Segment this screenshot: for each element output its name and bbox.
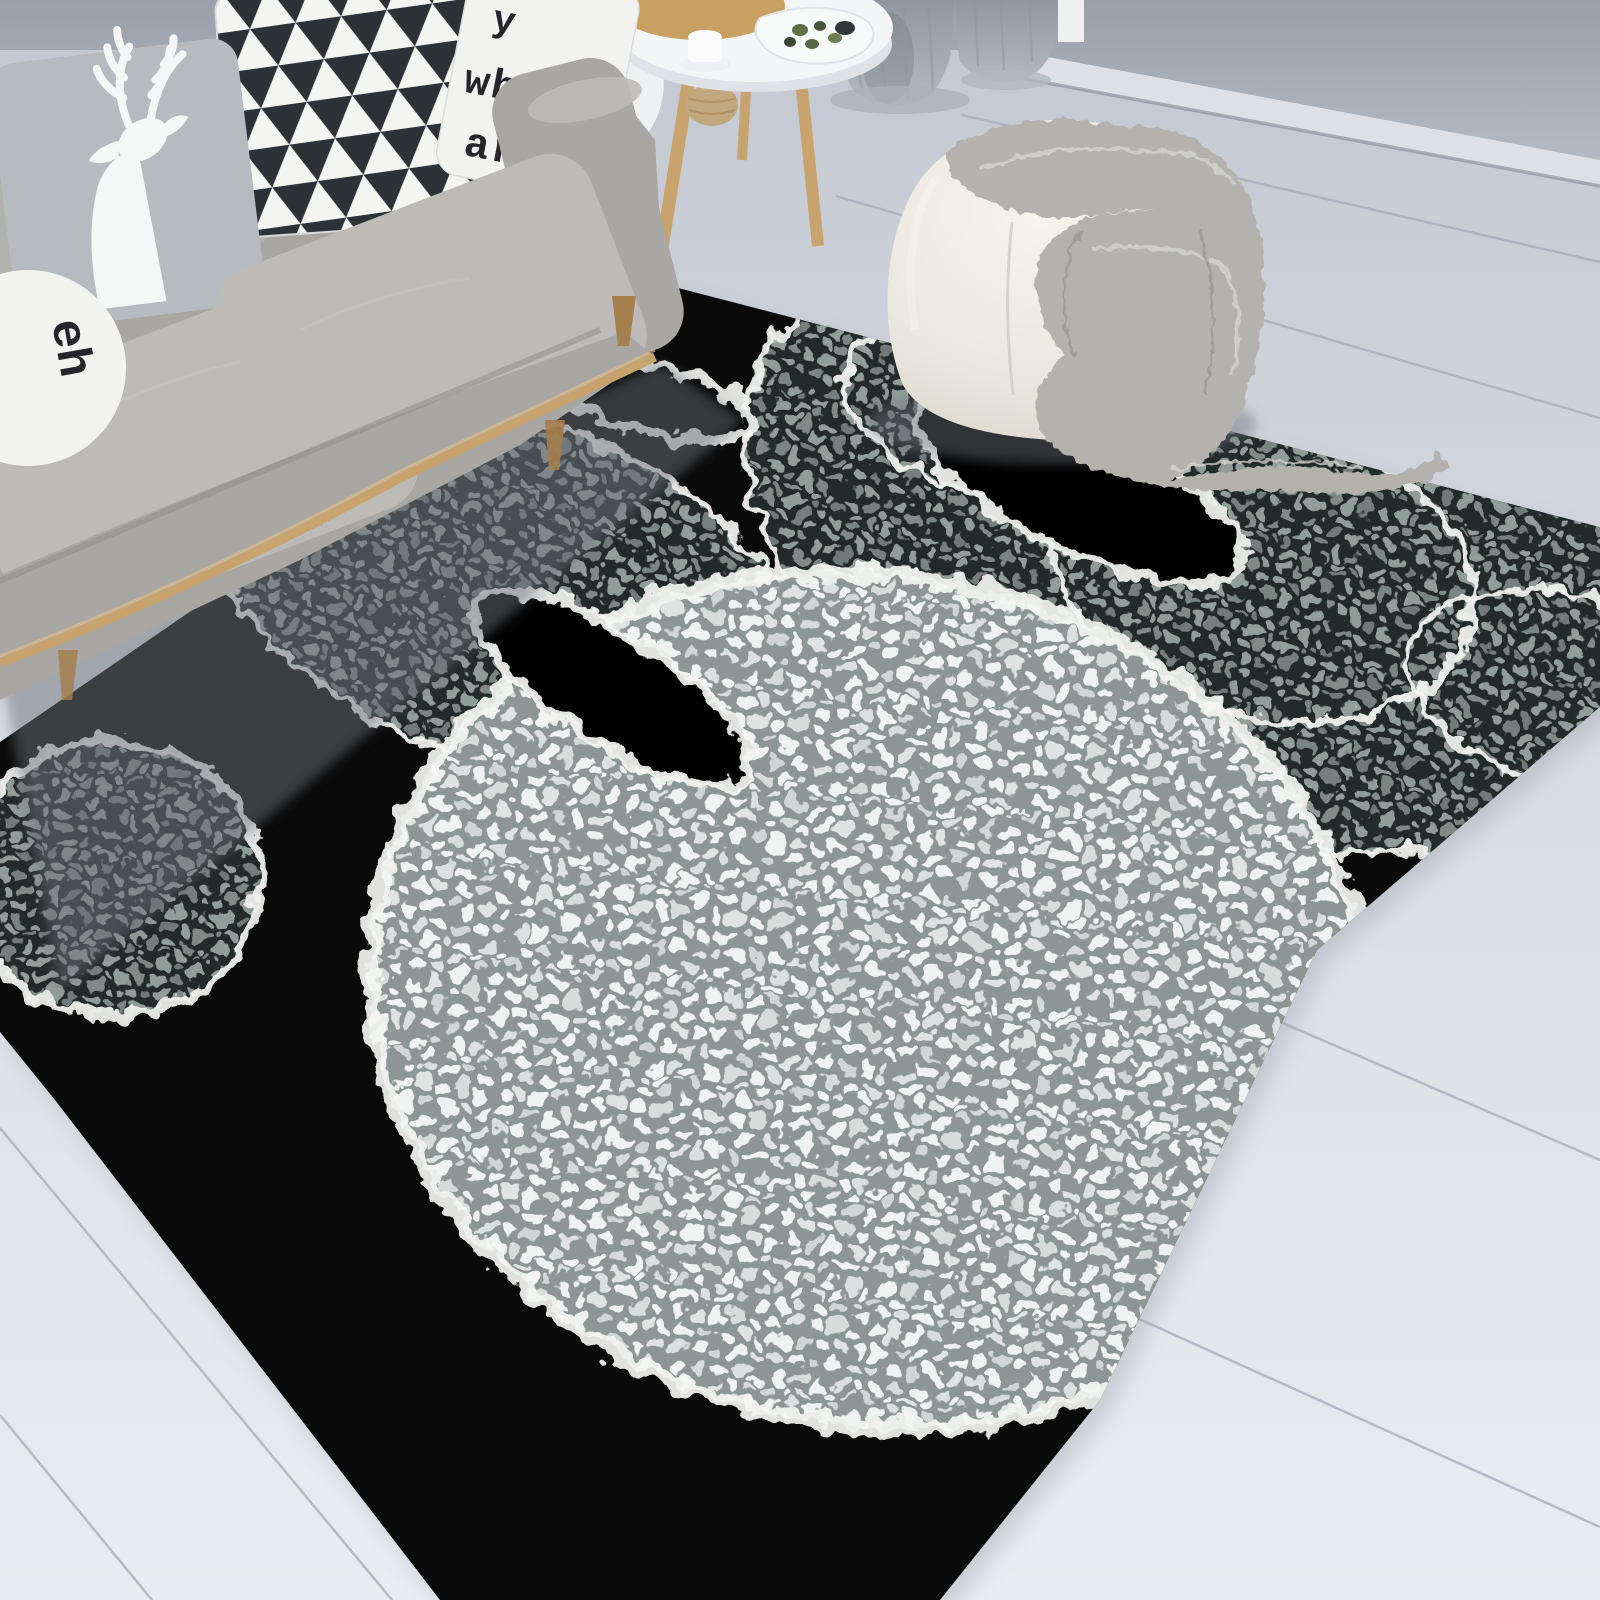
- curtain-puddle: [830, 86, 970, 114]
- curtain-puddle: [961, 70, 1051, 90]
- living-room-product-photo: y when are eh: [0, 0, 1600, 1600]
- scene: y when are eh: [0, 0, 1600, 1600]
- tray-greens: [784, 37, 796, 47]
- tray-bottle: [835, 21, 855, 35]
- tray-greens: [792, 24, 808, 36]
- tray-greens: [805, 39, 819, 49]
- tray-greens: [814, 21, 826, 31]
- pillow-round-text: eh: [37, 315, 100, 381]
- cup-rim: [688, 30, 722, 44]
- tray-greens: [828, 33, 842, 43]
- window-frame-sliver: [1058, 0, 1084, 42]
